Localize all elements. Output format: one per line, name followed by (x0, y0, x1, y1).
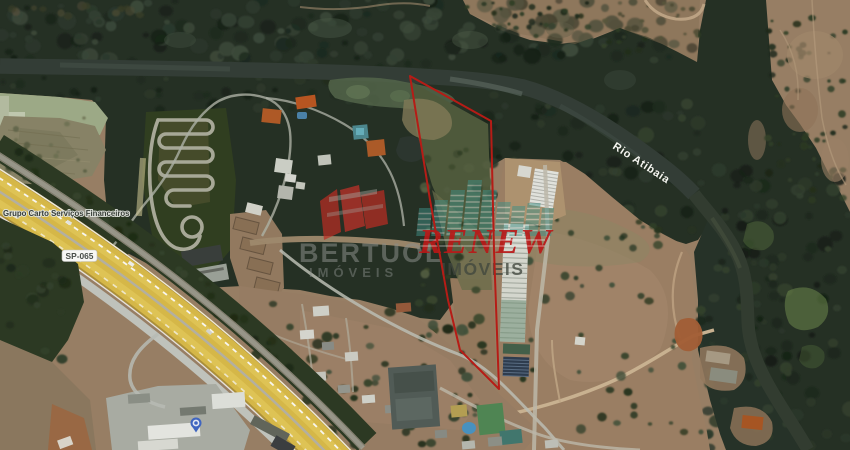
svg-text:Grupo Carto Serviços Financeir: Grupo Carto Serviços Financeiros (3, 209, 130, 218)
svg-text:IMÓVEIS: IMÓVEIS (309, 265, 398, 280)
svg-text:IMÓVEIS: IMÓVEIS (441, 258, 524, 279)
svg-text:SP-065: SP-065 (66, 251, 94, 261)
